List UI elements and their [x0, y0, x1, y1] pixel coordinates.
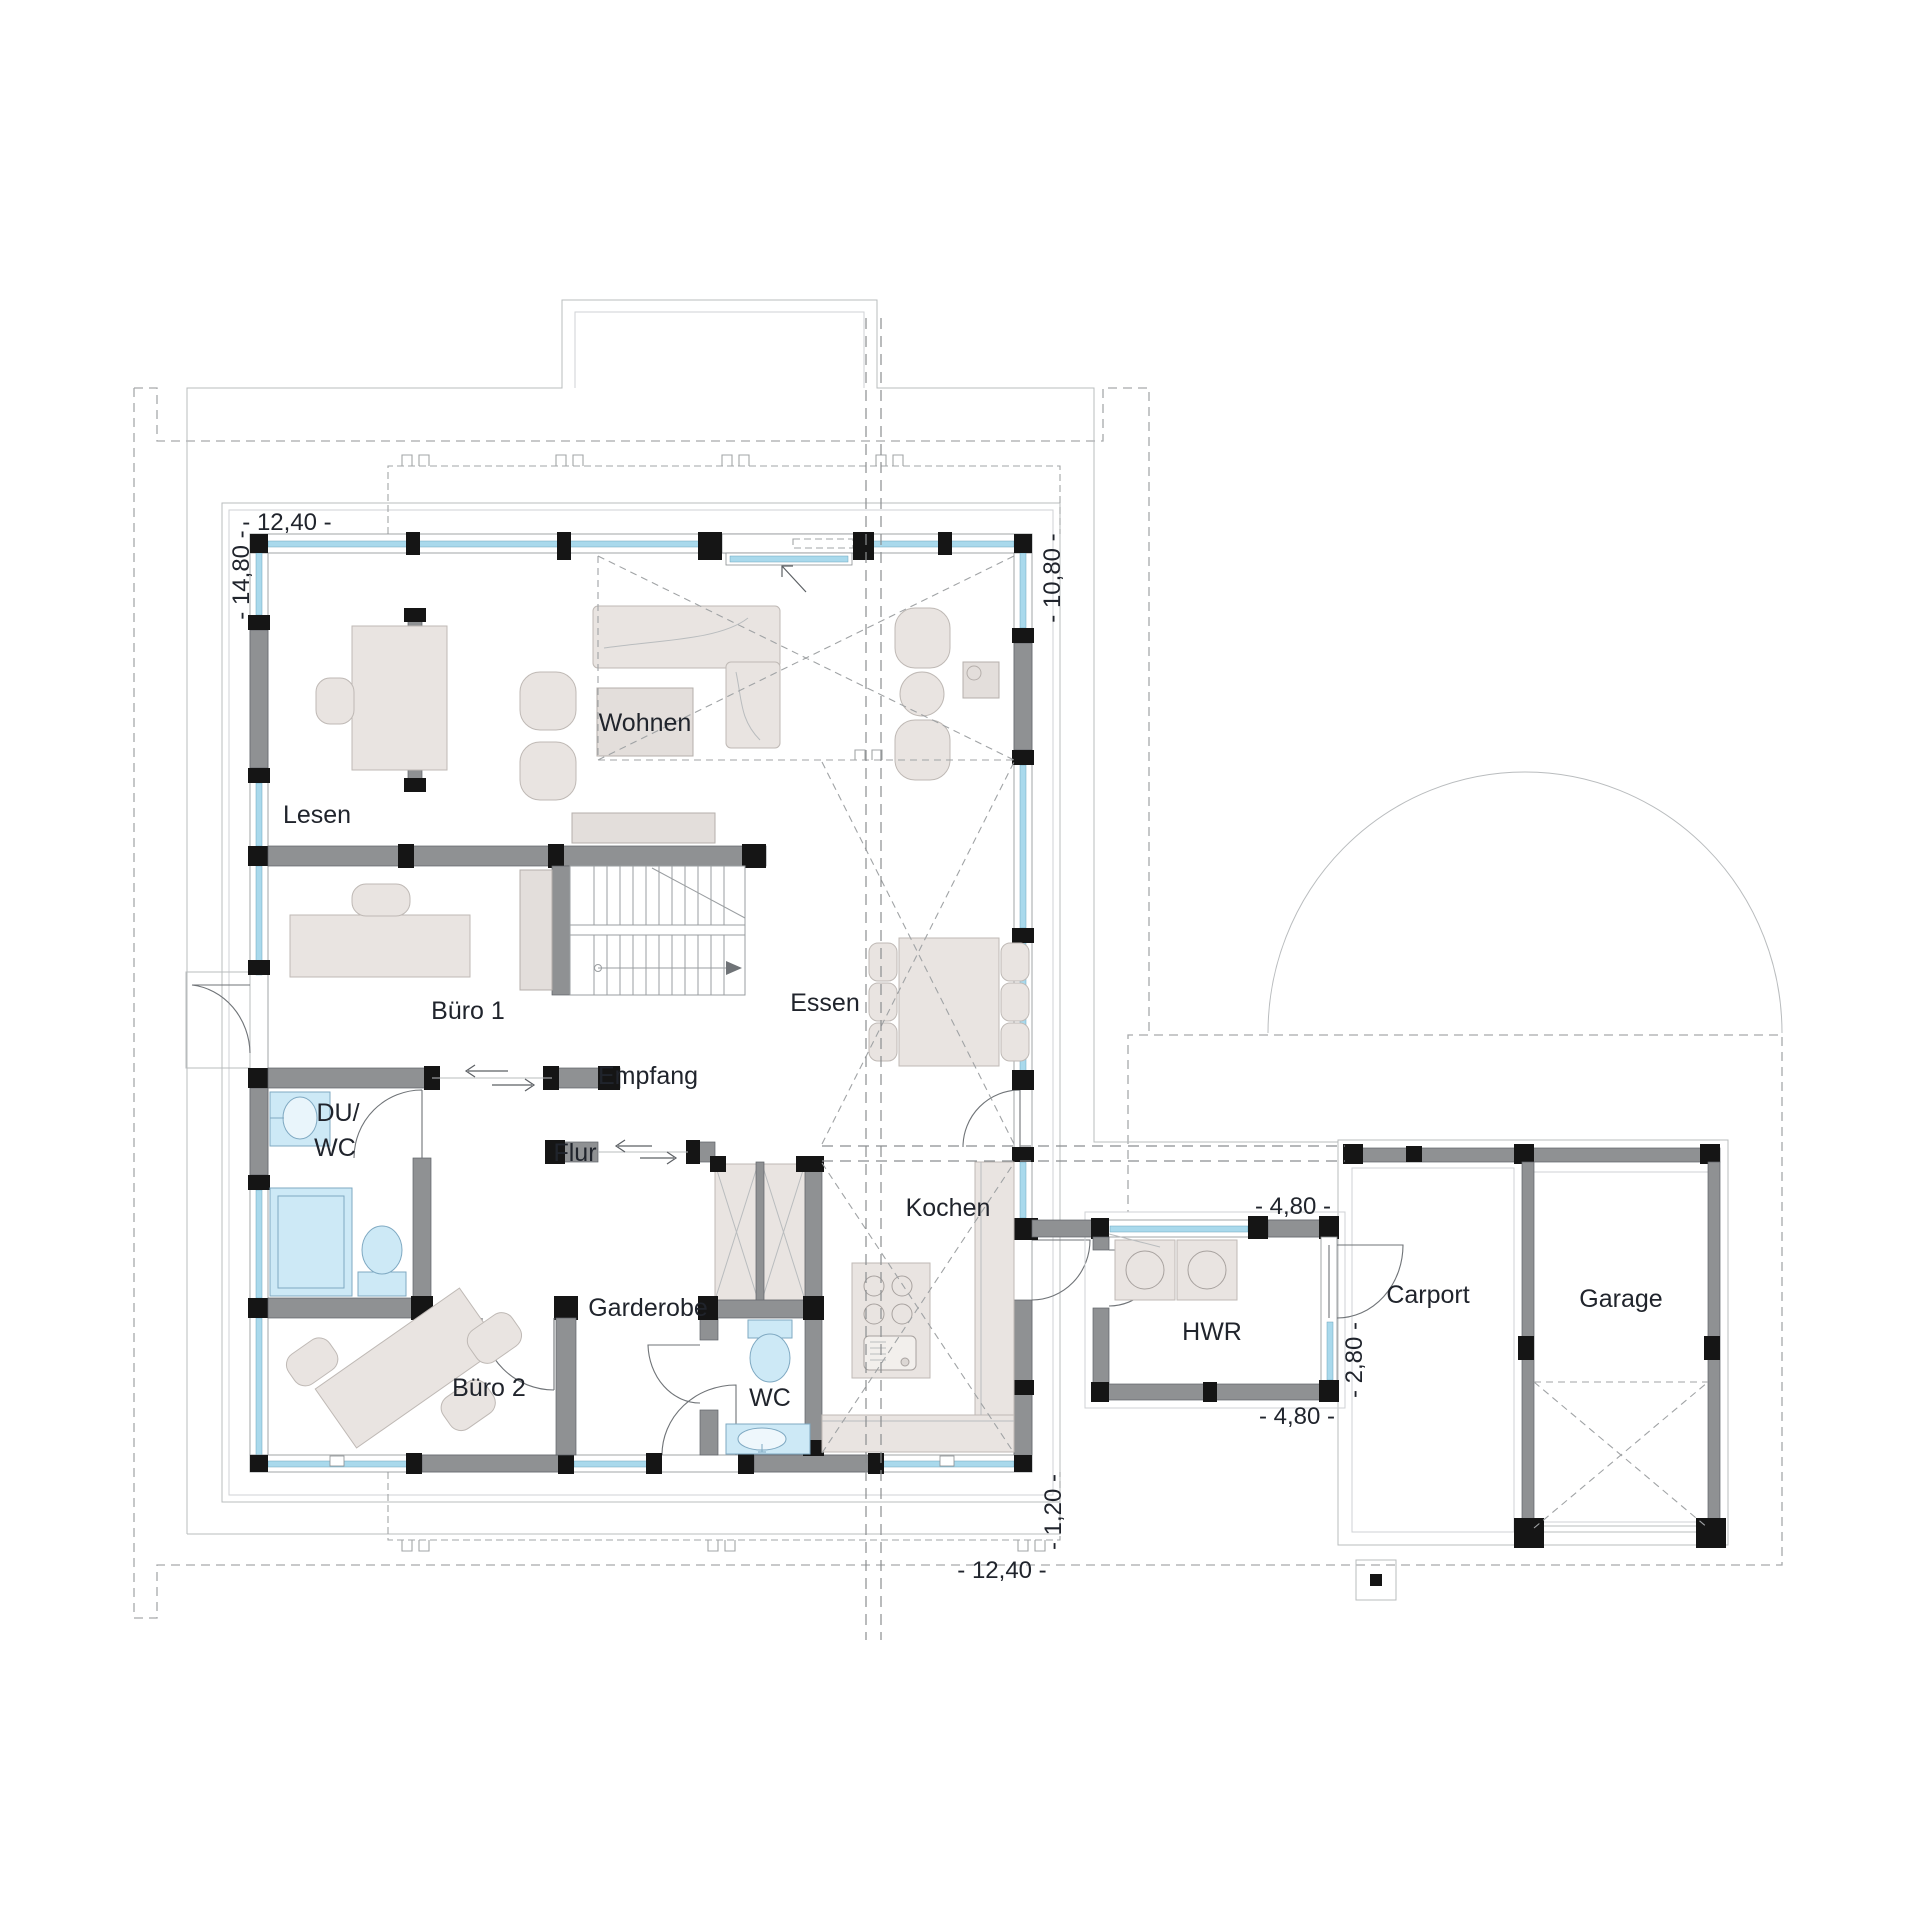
dim-hwr-bottom: - 4,80 -: [1259, 1403, 1335, 1430]
wardrobe-cabinets: [710, 1156, 812, 1302]
furniture-buero1: [290, 884, 470, 977]
furniture-seating-corner: [895, 608, 999, 780]
entrance-door: [722, 534, 855, 592]
room-label-buero1: Büro 1: [431, 997, 505, 1025]
furniture-lesen: [316, 626, 447, 770]
floor-plan-page: Lesen Wohnen Büro 1 Essen Empfang DU/ WC…: [0, 0, 1920, 1920]
dim-hwr-top: - 4,80 -: [1255, 1193, 1331, 1220]
room-label-garage: Garage: [1579, 1285, 1662, 1313]
room-label-kochen: Kochen: [906, 1194, 991, 1222]
room-label-duwc-1: DU/: [316, 1099, 359, 1127]
sliding-door-flur: [598, 1140, 688, 1164]
dim-bottom-offset: - 1,20 -: [1040, 1474, 1067, 1550]
garden-door: [662, 1385, 736, 1455]
room-label-lesen: Lesen: [283, 801, 351, 829]
rear-exit-door: [1032, 1240, 1090, 1300]
room-label-essen: Essen: [790, 989, 859, 1017]
post-marker: [1356, 1560, 1396, 1600]
room-label-hwr: HWR: [1182, 1318, 1242, 1346]
dim-hwr-right: - 2,80 -: [1341, 1322, 1368, 1398]
room-label-garderobe: Garderobe: [588, 1294, 708, 1322]
sliding-door-buero1: [432, 1065, 552, 1091]
room-label-flur: Flur: [553, 1139, 596, 1167]
dim-right-height: - 10,80 -: [1039, 533, 1066, 622]
room-label-buero2: Büro 2: [452, 1374, 526, 1402]
room-label-wc: WC: [749, 1384, 791, 1412]
driveway-arc: [1268, 772, 1782, 1033]
room-label-empfang: Empfang: [598, 1062, 698, 1090]
sideboard-stair: [520, 870, 552, 990]
dim-bottom-width: - 12,40 -: [957, 1557, 1046, 1584]
room-label-carport: Carport: [1386, 1281, 1469, 1309]
washer-dryer: [1109, 1234, 1237, 1300]
floor-plan-canvas: Lesen Wohnen Büro 1 Essen Empfang DU/ WC…: [0, 0, 1920, 1920]
side-entrance-door: [186, 972, 250, 1068]
room-label-wohnen: Wohnen: [599, 709, 692, 737]
room-label-duwc-2: WC: [314, 1134, 356, 1162]
dim-top-width: - 12,40 -: [242, 509, 331, 536]
sideboard-wohnen: [572, 813, 715, 843]
kitchen-island: [852, 1263, 930, 1378]
dim-left-height: - 14,80 -: [228, 530, 255, 619]
